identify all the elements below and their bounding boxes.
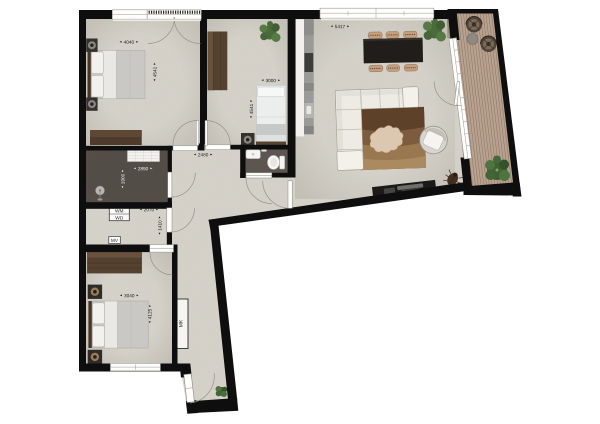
svg-text:MK: MK [179,319,185,327]
svg-text:2480: 2480 [198,152,209,157]
svg-text:5417: 5417 [335,24,346,29]
svg-text:4541: 4541 [249,103,254,114]
svg-text:3000: 3000 [266,78,277,83]
svg-text:MV: MV [111,238,119,243]
svg-text:3040: 3040 [124,293,135,298]
svg-text:2070: 2070 [144,207,155,212]
svg-text:4040: 4040 [124,40,135,45]
svg-text:WM: WM [115,209,124,215]
svg-text:4125: 4125 [148,308,153,319]
svg-text:4541: 4541 [152,66,157,77]
svg-text:WD: WD [115,215,124,221]
svg-text:2890: 2890 [138,166,149,171]
svg-text:1410: 1410 [157,220,162,231]
svg-text:1900: 1900 [120,173,125,184]
